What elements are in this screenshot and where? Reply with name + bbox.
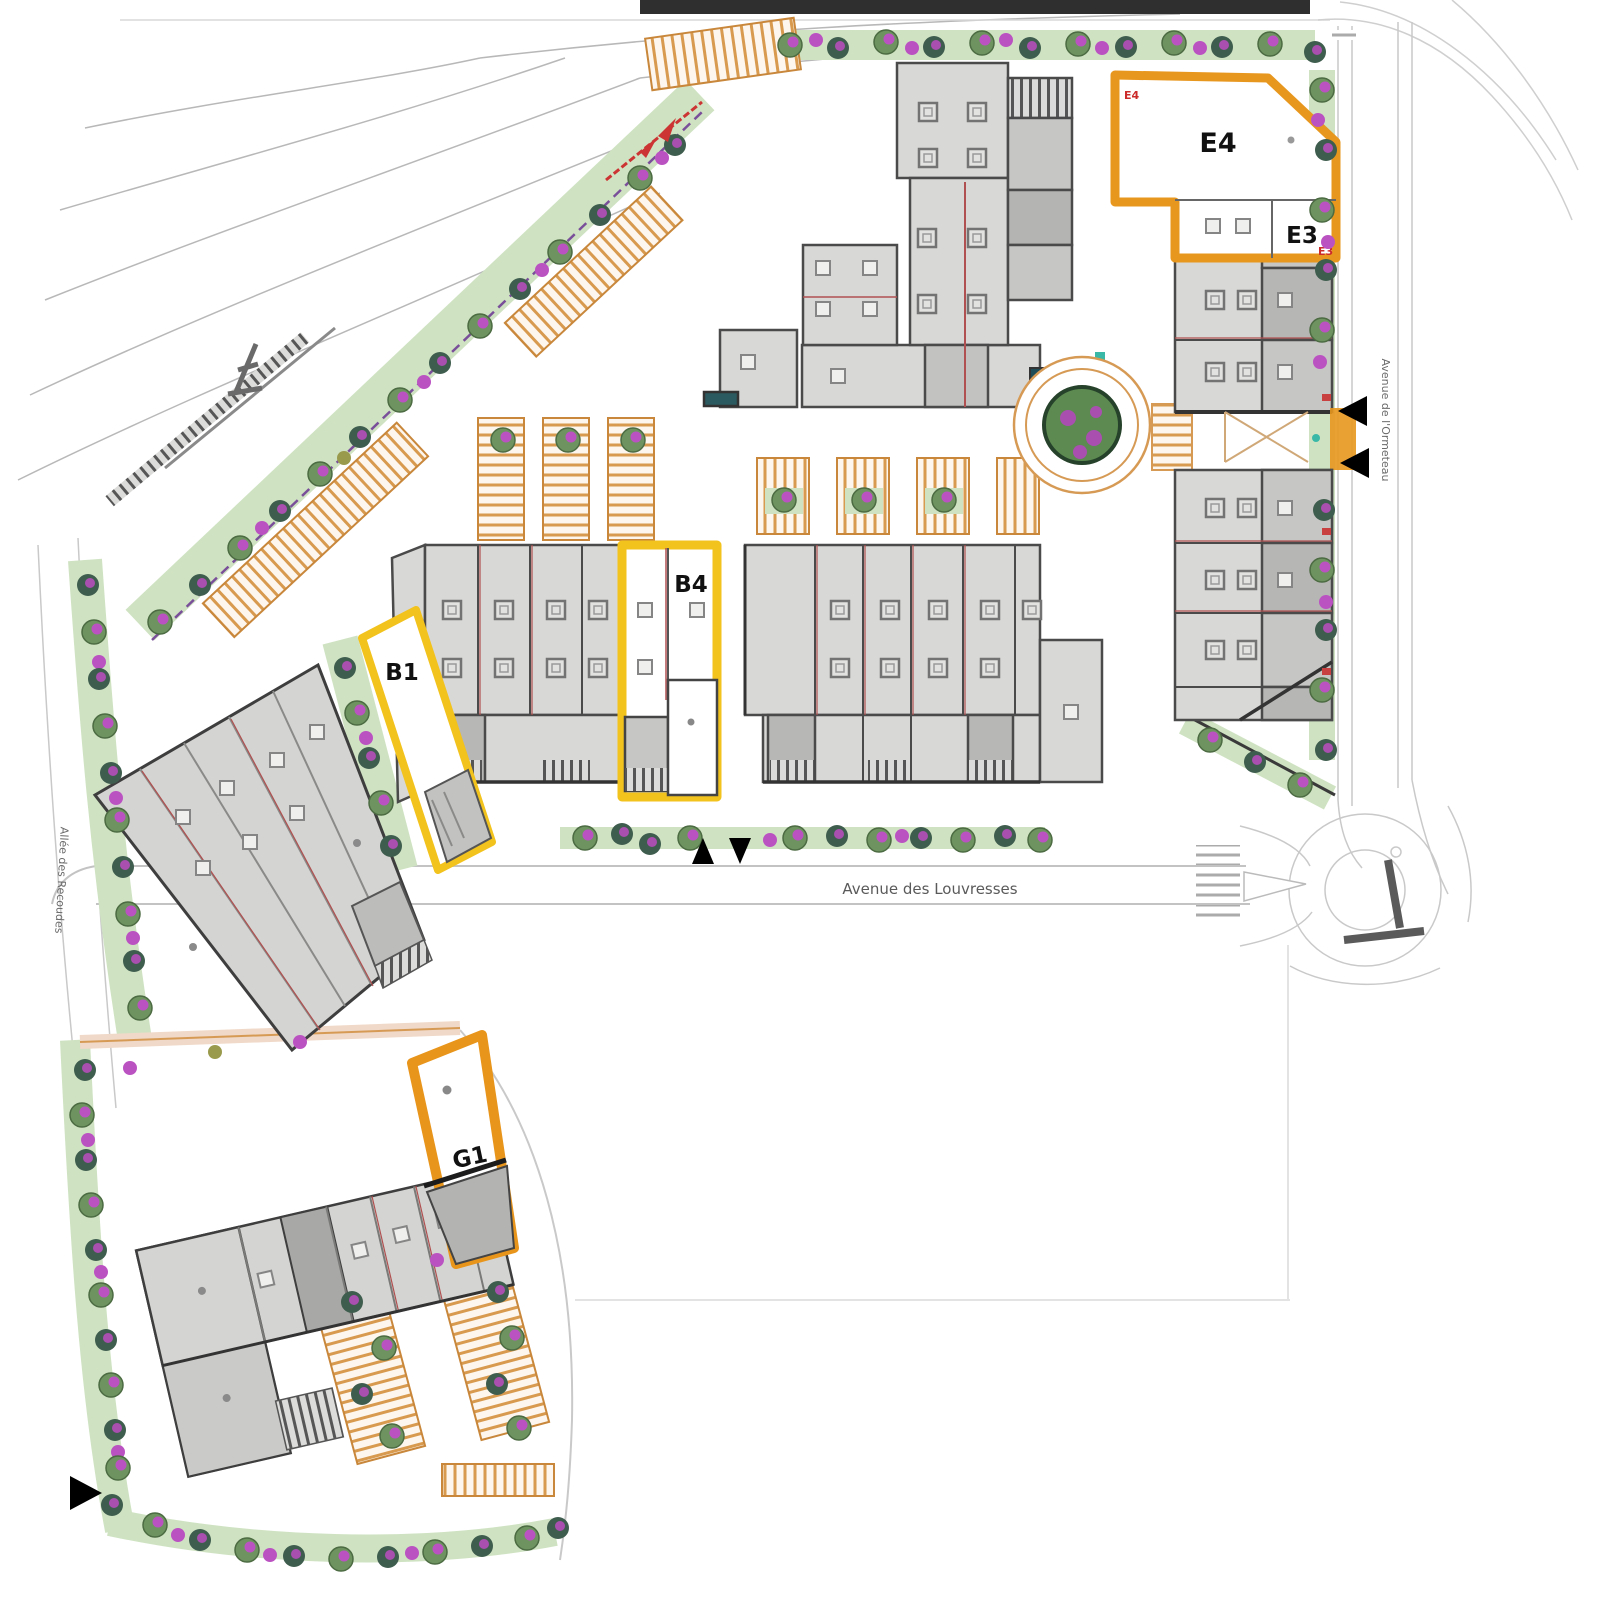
unit-label-b4: B4 [674,572,708,598]
unit-label-e3: E3 [1286,223,1318,249]
top-edge-band [640,0,1310,14]
street-avenue-de-l-ormeteau-label: Avenue de l'Ormeteau [1379,359,1392,482]
unit-b4-highlight[interactable]: B4 [622,545,717,797]
unit-label-e4: E4 [1199,128,1236,159]
unit-label-b1: B1 [385,660,419,686]
street-avenue-des-louvresses-label: Avenue des Louvresses [842,880,1017,898]
central-courtyard [1014,357,1150,493]
site-plan-map: E4 E3 E4 E3 B4 B1 G1 [0,0,1600,1600]
site-plan-page: E4 E3 E4 E3 B4 B1 G1 [0,0,1600,1600]
crosswalk-roundabout [1196,845,1240,923]
crosswalk-top-right [1332,30,1356,40]
unit-tag-e4: E4 [1124,89,1140,102]
